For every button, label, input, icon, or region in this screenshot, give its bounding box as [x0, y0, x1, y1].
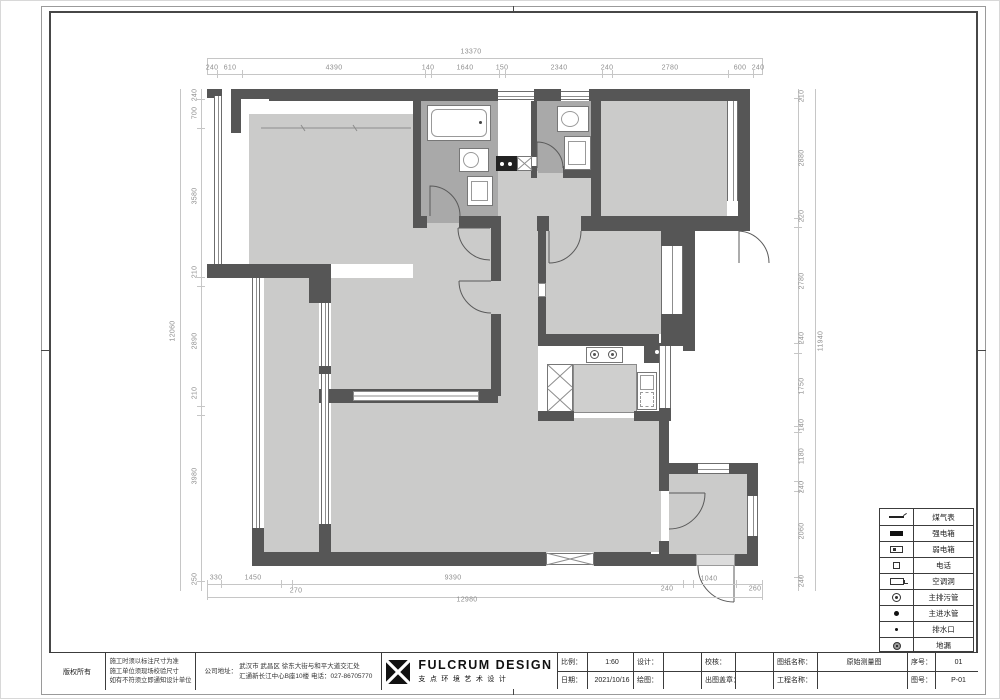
ac-hole-icon: [890, 578, 904, 585]
dim-label: 240: [192, 89, 199, 102]
legend-row: 地漏: [880, 637, 973, 653]
dim-label: 11940: [818, 331, 825, 351]
field-label: 比例：: [557, 653, 587, 671]
field-value: [663, 671, 701, 689]
main-sewage-pipe-icon: [892, 593, 901, 602]
gas-meter-icon: [889, 516, 904, 518]
dim-label: 2780: [662, 65, 679, 72]
dim-label: 610: [224, 65, 237, 72]
dimension-annotations: 13370 240 610 4390 140 1640 150 2340 240…: [1, 1, 1000, 700]
telephone-icon: [893, 562, 900, 569]
field-value: 2021/10/16: [587, 671, 633, 689]
field-value: [735, 671, 773, 689]
weak-power-box-icon: [890, 546, 903, 553]
notes-cell: 施工时须以标注尺寸为准 施工单位须现场校验尺寸 如有不符须立即通知设计单位: [105, 653, 195, 690]
field-value: P-01: [935, 671, 978, 689]
field-value: 原始测量图: [817, 653, 907, 671]
dim-label: 240: [799, 332, 806, 345]
dim-label: 220: [799, 210, 806, 223]
note-line: 如有不符须立即通知设计单位: [110, 676, 192, 686]
legend-label: 主进水管: [914, 608, 973, 619]
dim-label: 240: [799, 481, 806, 494]
field-value: [735, 653, 773, 671]
dim-label: 240: [799, 575, 806, 588]
legend-label: 主排污管: [914, 592, 973, 603]
dim-label: 270: [290, 588, 303, 595]
dim-label: 260: [749, 586, 762, 593]
field-value: 01: [935, 653, 978, 671]
dim-label: 1450: [245, 575, 262, 582]
legend-row: 强电箱: [880, 525, 973, 541]
legend-row: 空调洞: [880, 573, 973, 589]
field-label: 出图盖章：: [701, 671, 735, 689]
legend-row: 煤气表: [880, 509, 973, 525]
dim-label: 150: [496, 65, 509, 72]
dim-label: 250: [192, 573, 199, 586]
note-line: 施工单位须现场校验尺寸: [110, 667, 192, 677]
dim-label: 210: [799, 90, 806, 103]
dim-label: 3580: [192, 188, 199, 205]
legend-label: 排水口: [914, 624, 973, 635]
field-label: 工程名称：: [773, 671, 817, 689]
field-label: 图号：: [907, 671, 935, 689]
dim-label: 12980: [457, 597, 478, 604]
dim-label: 13370: [461, 49, 482, 56]
dim-label: 600: [734, 65, 747, 72]
dim-label: 2780: [799, 273, 806, 290]
copyright-cell: 版权所有: [49, 653, 105, 690]
field-label: 图纸名称：: [773, 653, 817, 671]
legend-row: 排水口: [880, 621, 973, 637]
dim-label: 210: [192, 266, 199, 279]
dim-label: 1180: [799, 448, 806, 464]
brand-name-cn: 支点环境艺术设计: [418, 674, 552, 684]
dim-label: 2890: [192, 333, 199, 350]
legend-row: 主进水管: [880, 605, 973, 621]
dim-label: 210: [192, 387, 199, 400]
dim-label: 240: [661, 586, 674, 593]
legend-label: 弱电箱: [914, 544, 973, 555]
dim-label: 12060: [170, 321, 177, 342]
dim-label: 2060: [799, 523, 806, 540]
dim-label: 140: [422, 65, 435, 72]
title-block: 版权所有 施工时须以标注尺寸为准 施工单位须现场校验尺寸 如有不符须立即通知设计…: [49, 652, 978, 689]
address-line: 武汉市 武昌区 徐东大街与和平大道交汇处: [239, 662, 372, 672]
drain-outlet-icon: [895, 628, 898, 631]
dim-label: 3980: [192, 468, 199, 485]
copyright-text: 版权所有: [63, 667, 91, 677]
field-value: [663, 653, 701, 671]
legend-label: 空调洞: [914, 576, 973, 587]
floor-drain-icon: [893, 642, 901, 650]
address-cell: 公司地址： 武汉市 武昌区 徐东大街与和平大道交汇处 汇通新长江中心B座10楼 …: [195, 653, 381, 690]
dim-label: 140: [799, 419, 806, 432]
address-label: 公司地址：: [205, 667, 238, 677]
note-line: 施工时须以标注尺寸为准: [110, 657, 192, 667]
dim-label: 240: [601, 65, 614, 72]
dim-label: 9390: [445, 575, 462, 582]
field-label: 校核：: [701, 653, 735, 671]
field-label: 序号：: [907, 653, 935, 671]
strong-power-box-icon: [890, 531, 903, 536]
dim-label: 2340: [551, 65, 568, 72]
fulcrum-logo-icon: [386, 660, 410, 684]
main-water-inlet-icon: [894, 611, 899, 616]
legend-row: 电话: [880, 557, 973, 573]
dim-label: 1640: [457, 65, 474, 72]
dim-label: 240: [206, 65, 219, 72]
dim-label: 240: [752, 65, 765, 72]
legend-label: 地漏: [914, 640, 973, 651]
legend-table: 煤气表 强电箱 弱电箱 电话 空调洞 主排污管 主进水管 排水口: [879, 508, 974, 652]
dim-label: 330: [210, 575, 223, 582]
dim-label: 700: [192, 107, 199, 120]
field-label: 设计：: [633, 653, 663, 671]
legend-row: 弱电箱: [880, 541, 973, 557]
brand-name-en: FULCRUM DESIGN: [418, 659, 552, 673]
legend-label: 电话: [914, 560, 973, 571]
field-value: [817, 671, 907, 689]
dim-label: 4390: [326, 65, 343, 72]
dim-label: 1040: [701, 576, 718, 583]
dim-label: 2880: [799, 150, 806, 167]
address-line: 汇通新长江中心B座10楼 电话：027-86705770: [239, 672, 372, 682]
field-value: 1:60: [587, 653, 633, 671]
legend-label: 强电箱: [914, 528, 973, 539]
legend-label: 煤气表: [914, 512, 973, 523]
field-label: 绘图：: [633, 671, 663, 689]
field-label: 日期：: [557, 671, 587, 689]
legend-row: 主排污管: [880, 589, 973, 605]
drawing-sheet: 13370 240 610 4390 140 1640 150 2340 240…: [0, 0, 1000, 699]
brand-cell: FULCRUM DESIGN 支点环境艺术设计: [381, 653, 557, 690]
dim-label: 1750: [799, 378, 806, 395]
